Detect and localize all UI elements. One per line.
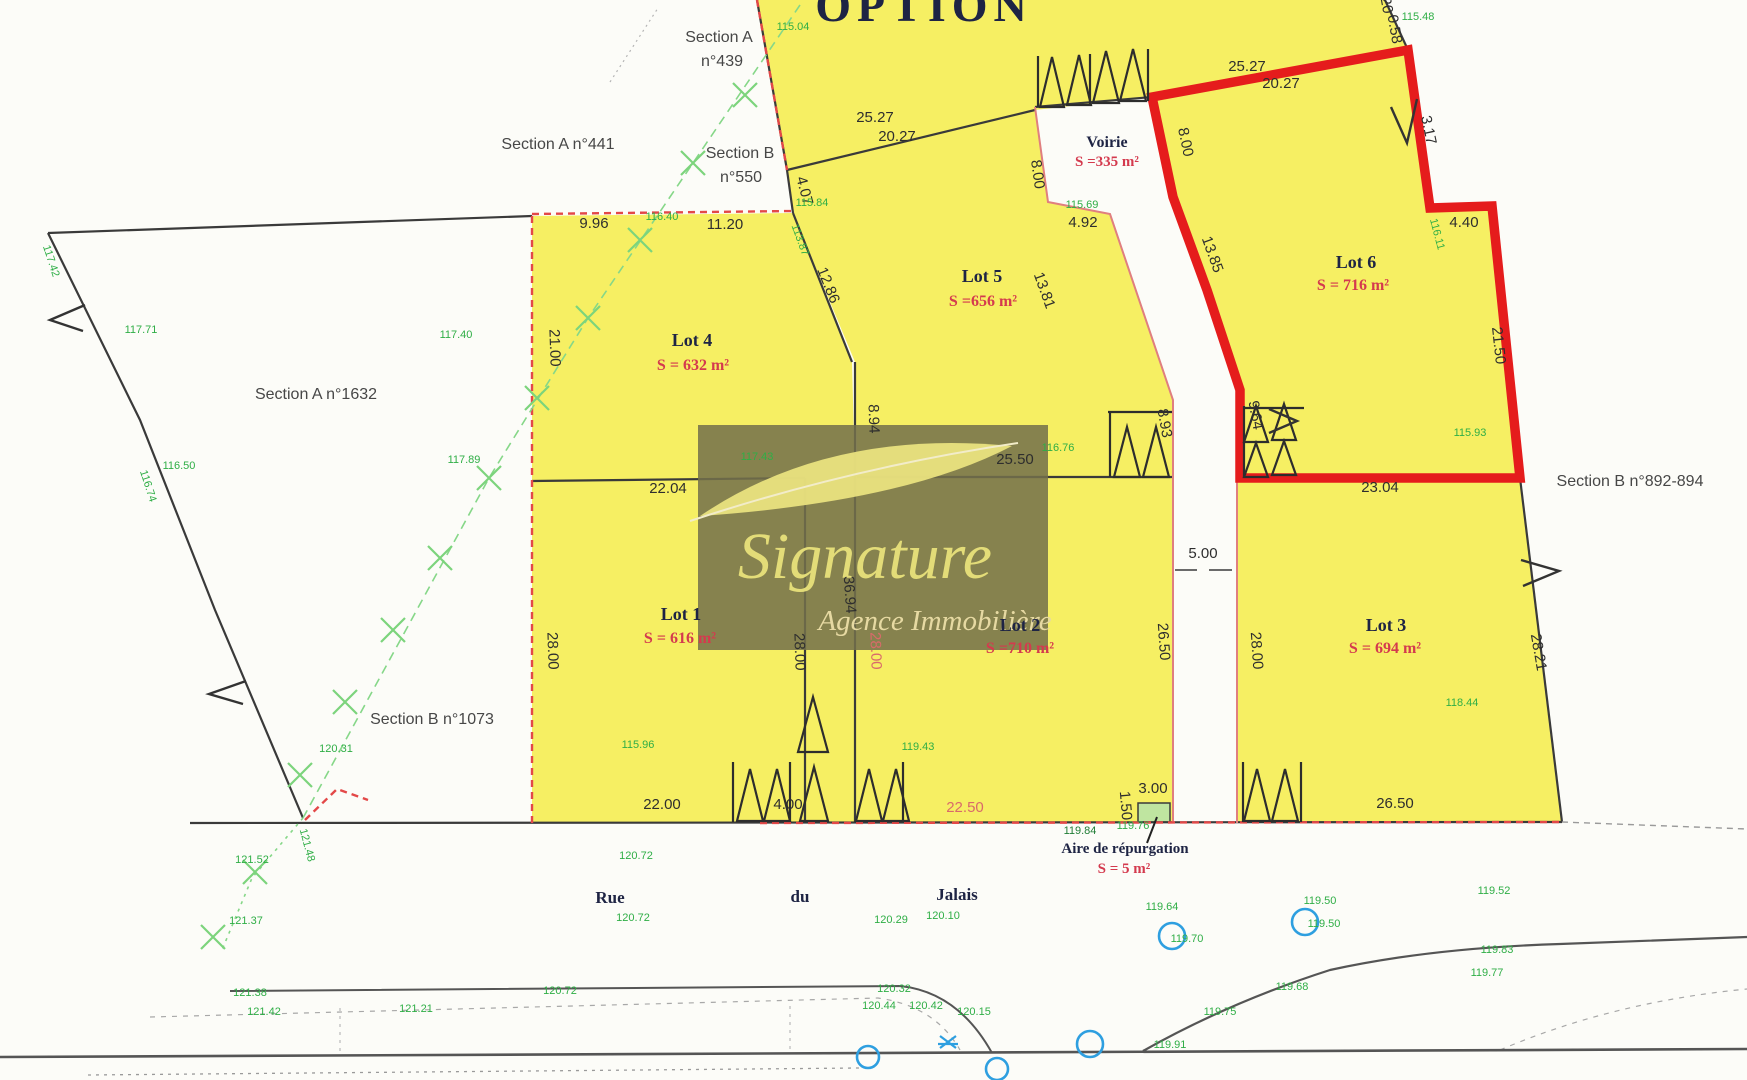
lot-5-label: Lot 5 bbox=[962, 266, 1003, 286]
lot-5-area: S =656 m² bbox=[949, 293, 1017, 310]
lot-3-label: Lot 3 bbox=[1366, 615, 1407, 635]
measurement-label: 25.50 bbox=[996, 451, 1034, 468]
lot-6-area: S = 716 m² bbox=[1317, 277, 1389, 294]
measurement-label: 26.50 bbox=[1154, 622, 1174, 661]
elevation-label: 117.43 bbox=[741, 451, 774, 463]
lot-6-label: Lot 6 bbox=[1336, 252, 1377, 272]
section-label: Section A n°441 bbox=[501, 136, 614, 153]
elevation-label: 119.77 bbox=[1471, 967, 1504, 979]
elevation-label: 121.37 bbox=[229, 915, 263, 927]
elevation-label: 115.48 bbox=[1402, 11, 1435, 23]
elevation-label: 115.84 bbox=[796, 197, 829, 209]
elevation-label: 119.70 bbox=[1171, 933, 1204, 945]
elevation-label: 119.76 bbox=[1117, 820, 1150, 832]
voirie-area: S =335 m² bbox=[1075, 154, 1139, 170]
measurement-label: 4.92 bbox=[1068, 214, 1097, 231]
measurement-label: 21.00 bbox=[545, 329, 563, 367]
measurement-label: 9.96 bbox=[579, 215, 608, 232]
lot-1-area: S = 616 m² bbox=[644, 630, 716, 647]
elevation-label: 120.42 bbox=[909, 1000, 943, 1012]
elevation-label: 119.64 bbox=[1146, 901, 1179, 913]
elevation-label: 120.72 bbox=[619, 850, 653, 862]
elevation-label: 119.84 bbox=[1064, 825, 1097, 837]
section-label: Section B n°892-894 bbox=[1557, 473, 1704, 490]
elevation-label: 119.50 bbox=[1308, 918, 1341, 930]
lot-3-area: S = 694 m² bbox=[1349, 640, 1421, 657]
measurement-label: 22.00 bbox=[643, 796, 681, 813]
watermark-brand: Signature bbox=[738, 520, 992, 593]
lot-2-label: Lot 2 bbox=[1000, 615, 1041, 635]
elevation-label: 116.40 bbox=[646, 211, 679, 223]
section-label: Section A n°1632 bbox=[255, 386, 377, 403]
elevation-label: 119.75 bbox=[1204, 1006, 1237, 1018]
elevation-label: 119.52 bbox=[1478, 885, 1511, 897]
elevation-label: 116.50 bbox=[163, 460, 196, 472]
elevation-label: 120.32 bbox=[877, 983, 911, 995]
plan-title: OPTION bbox=[815, 0, 1032, 31]
measurement-label: 20.27 bbox=[1262, 75, 1300, 92]
elevation-label: 115.04 bbox=[777, 21, 810, 33]
elevation-label: 121.42 bbox=[247, 1006, 281, 1018]
measurement-label: 25.27 bbox=[856, 109, 894, 126]
measurement-label: 23.04 bbox=[1361, 479, 1399, 496]
measurement-label: 11.20 bbox=[707, 216, 743, 233]
cadastral-plan: SignatureAgence ImmobilièreOPTIONLot 1S … bbox=[0, 0, 1747, 1080]
street-name: du bbox=[791, 887, 810, 906]
measurement-label: 25.27 bbox=[1228, 58, 1266, 75]
elevation-label: 120.72 bbox=[616, 912, 650, 924]
street-name: Jalais bbox=[936, 885, 978, 904]
aire-label: Aire de répurgation bbox=[1061, 841, 1189, 857]
measurement-label: 20.27 bbox=[878, 128, 916, 145]
elevation-label: 120.72 bbox=[543, 985, 577, 997]
elevation-label: 121.38 bbox=[233, 987, 267, 999]
elevation-label: 118.44 bbox=[1446, 697, 1479, 709]
elevation-label: 119.50 bbox=[1304, 895, 1337, 907]
elevation-label: 115.93 bbox=[1454, 427, 1487, 439]
section-label: Section A bbox=[685, 29, 753, 46]
measurement-label: 4.40 bbox=[1449, 214, 1478, 231]
measurement-label: 5.00 bbox=[1188, 545, 1217, 562]
elevation-label: 117.89 bbox=[448, 454, 481, 466]
aire-area: S = 5 m² bbox=[1098, 861, 1151, 877]
elevation-label: 119.43 bbox=[902, 741, 935, 753]
elevation-label: 119.68 bbox=[1276, 981, 1309, 993]
voirie-label: Voirie bbox=[1086, 134, 1127, 151]
elevation-label: 120.15 bbox=[957, 1006, 991, 1018]
section-label: Section B n°1073 bbox=[370, 711, 494, 728]
section-label: n°550 bbox=[720, 169, 762, 186]
elevation-label: 116.76 bbox=[1042, 442, 1075, 454]
section-label: Section B bbox=[706, 145, 774, 162]
measurement-label: 28.00 bbox=[790, 633, 808, 671]
elevation-label: 119.83 bbox=[1481, 944, 1514, 956]
elevation-label: 115.69 bbox=[1066, 199, 1099, 211]
measurement-label: 28.00 bbox=[543, 632, 561, 670]
section-label: n°439 bbox=[701, 53, 743, 70]
elevation-label: 120.10 bbox=[926, 910, 960, 922]
parcel-boundary-line bbox=[190, 822, 1562, 823]
lot-2-area: S =710 m² bbox=[986, 640, 1054, 657]
lot-1-label: Lot 1 bbox=[661, 604, 702, 624]
elevation-label: 117.40 bbox=[440, 329, 473, 341]
cadastral-plan-drawing: SignatureAgence ImmobilièreOPTIONLot 1S … bbox=[0, 0, 1747, 1080]
measurement-label: 3.00 bbox=[1138, 780, 1167, 797]
measurement-label: 1.50 bbox=[1116, 790, 1135, 821]
elevation-label: 121.52 bbox=[235, 854, 269, 866]
measurement-label: 8.94 bbox=[864, 404, 882, 434]
measurement-label: 28.00 bbox=[1247, 631, 1267, 670]
elevation-label: 121.21 bbox=[399, 1003, 433, 1015]
elevation-label: 120.44 bbox=[862, 1000, 896, 1012]
measurement-label: 22.50 bbox=[946, 799, 984, 816]
measurement-label: 4.00 bbox=[773, 796, 802, 813]
elevation-label: 120.29 bbox=[874, 914, 908, 926]
measurement-label: 22.04 bbox=[649, 480, 687, 497]
elevation-label: 119.91 bbox=[1154, 1039, 1187, 1051]
measurement-label: 28.00 bbox=[866, 632, 884, 670]
elevation-label: 115.96 bbox=[622, 739, 655, 751]
measurement-label: 26.50 bbox=[1376, 795, 1414, 812]
lot-4-label: Lot 4 bbox=[672, 330, 713, 350]
elevation-label: 120.31 bbox=[319, 743, 353, 755]
elevation-label: 117.71 bbox=[125, 324, 158, 336]
measurement-label: 36.94 bbox=[840, 575, 860, 614]
lot-4-area: S = 632 m² bbox=[657, 357, 729, 374]
street-name: Rue bbox=[595, 888, 625, 907]
